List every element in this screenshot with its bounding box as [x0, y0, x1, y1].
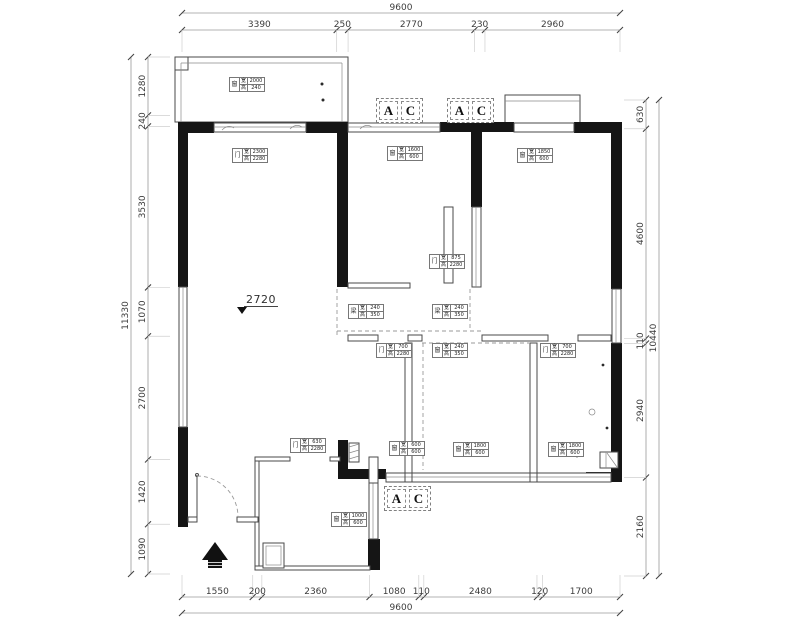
- tag-kitchen-door: 门宽630高2280: [290, 438, 326, 453]
- floor-plan-canvas: 3390250277023029609600155020023601080110…: [0, 0, 800, 640]
- door-symbol: 门: [377, 344, 387, 357]
- tag-middle-window: 窗宽240高350: [432, 343, 468, 358]
- tag-bedroom3-door: 门宽700高2280: [540, 343, 576, 358]
- level-marker-triangle-icon: [237, 307, 247, 314]
- door-symbol: 门: [430, 255, 440, 268]
- tag-bedroom1-door: 门宽875高2280: [429, 254, 465, 269]
- level-marker-text: 2720: [244, 293, 278, 307]
- ac-letter: A: [387, 489, 406, 508]
- window-symbol: 窗: [230, 78, 240, 91]
- ac-letter: A: [379, 101, 398, 120]
- tag-beam-right: 梁宽240高350: [432, 304, 468, 319]
- tag-bedroom3-window: 窗宽1800高600: [548, 442, 584, 457]
- tag-bathroom-door: 门宽700高2280: [376, 343, 412, 358]
- tag-bedroom1-window: 窗宽1600高600: [387, 146, 423, 161]
- window-symbol: 窗: [390, 442, 400, 455]
- ac-letter: C: [409, 489, 428, 508]
- tag-bathroom-window: 窗宽600高600: [389, 441, 425, 456]
- ac-unit-marker-2: AC: [447, 98, 494, 123]
- door-symbol: 门: [291, 439, 301, 452]
- tag-beam-left: 梁宽240高350: [348, 304, 384, 319]
- tag-balcony-window: 窗宽2000高240: [229, 77, 265, 92]
- beam-symbol: 梁: [349, 305, 359, 318]
- door-symbol: 门: [541, 344, 551, 357]
- tag-bedroom2-window: 窗宽1850高600: [517, 148, 553, 163]
- window-symbol: 窗: [332, 513, 342, 526]
- annotation-overlay: 2720 窗宽2000高240门宽2300高2280窗宽1600高600窗宽18…: [0, 0, 800, 640]
- ac-letter: C: [472, 101, 491, 120]
- ac-unit-marker-3: AC: [384, 486, 431, 511]
- door-symbol: 门: [233, 149, 243, 162]
- tag-middleroom-window: 窗宽1800高600: [453, 442, 489, 457]
- tag-living-balcony-door: 门宽2300高2280: [232, 148, 268, 163]
- window-symbol: 窗: [518, 149, 528, 162]
- ac-unit-marker-1: AC: [376, 98, 423, 123]
- window-symbol: 窗: [388, 147, 398, 160]
- window-symbol: 窗: [454, 443, 464, 456]
- tag-kitchen-window: 窗宽1000高600: [331, 512, 367, 527]
- ac-letter: C: [401, 101, 420, 120]
- window-symbol: 窗: [549, 443, 559, 456]
- ac-letter: A: [450, 101, 469, 120]
- window-symbol: 窗: [433, 344, 443, 357]
- beam-symbol: 梁: [433, 305, 443, 318]
